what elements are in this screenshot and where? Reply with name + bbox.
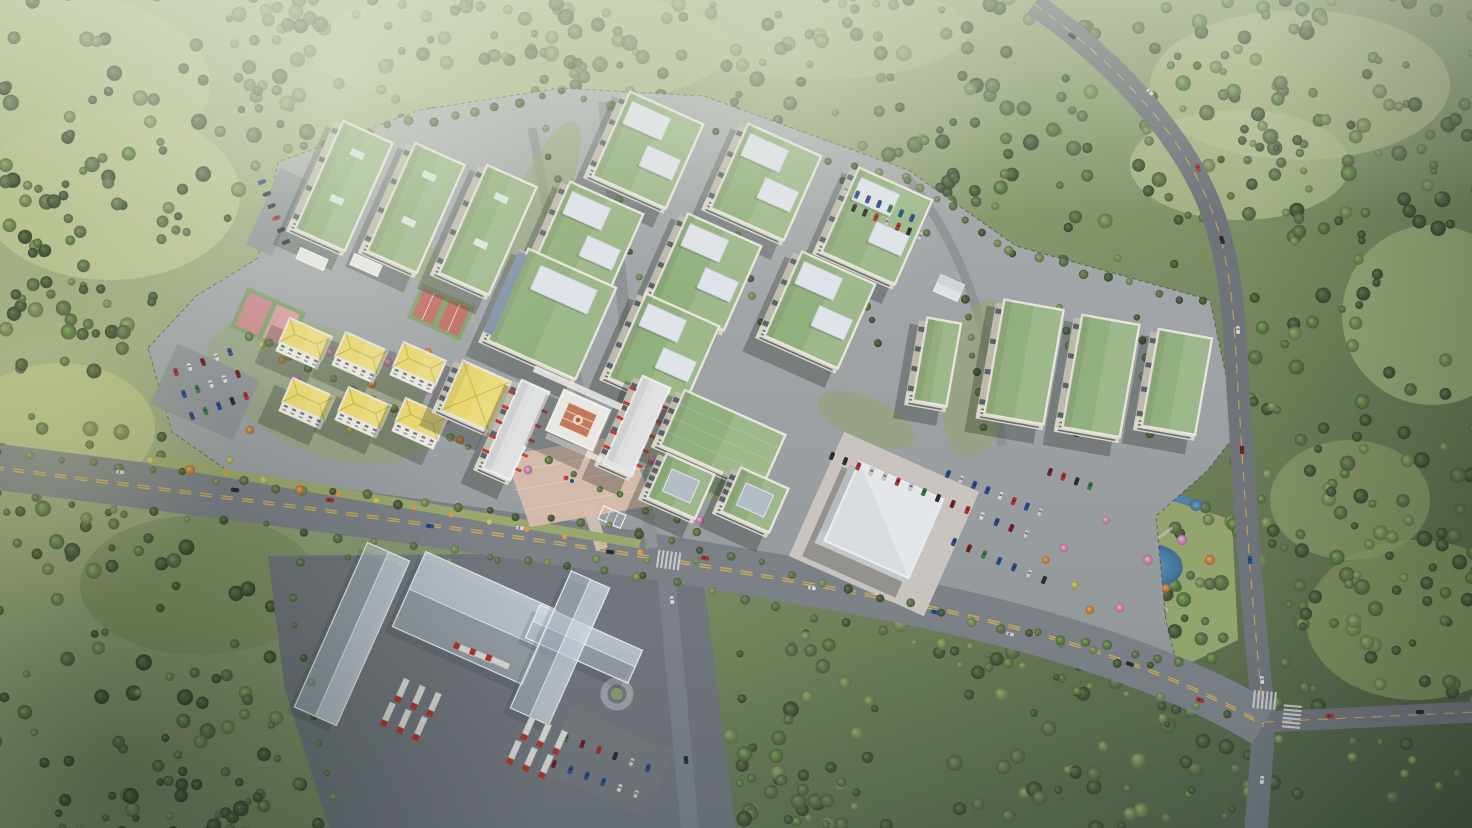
vignette (0, 0, 1472, 828)
atmosphere-overlays (0, 0, 1472, 828)
aerial-masterplan-rendering (0, 0, 1472, 828)
rendering-viewport (0, 0, 1472, 828)
